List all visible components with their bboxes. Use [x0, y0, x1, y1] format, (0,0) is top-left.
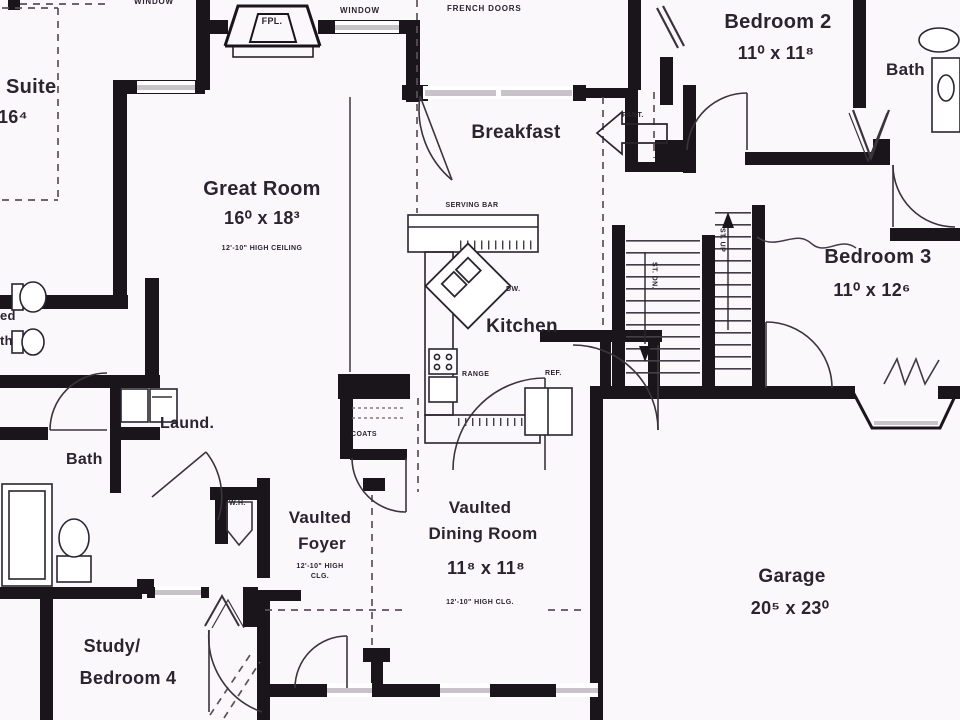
- study-name2: Bedroom 4: [80, 669, 177, 688]
- foyer-ceiling-note1: 12'-10" HIGH: [296, 563, 343, 570]
- window-label-left: WINDOW: [134, 0, 174, 6]
- floor-plan: WINDOW WINDOW FPL. FRENCH DOORS Bedroom …: [0, 0, 960, 720]
- breakfast-name: Breakfast: [471, 123, 560, 143]
- dining-name2: Dining Room: [428, 525, 537, 543]
- window-label-right: WINDOW: [340, 7, 380, 15]
- stairs-up-label: ST. UP: [718, 228, 725, 252]
- dining-ceiling-note: 12'-10" HIGH CLG.: [446, 599, 514, 606]
- garage-dims: 20⁵ x 23⁰: [751, 599, 829, 618]
- upper-bath-fixtures: [919, 28, 960, 132]
- suite-name: Suite: [6, 77, 56, 98]
- kitchen-name: Kitchen: [486, 317, 558, 337]
- laundry-name: Laund.: [160, 416, 214, 433]
- shelf-dashes: [352, 408, 404, 418]
- foyer-name2: Foyer: [298, 535, 346, 553]
- suite-dims: 16⁴: [0, 108, 28, 127]
- foyer-name1: Vaulted: [289, 509, 352, 527]
- refrigerator-icon: [525, 388, 572, 435]
- great-room-ceiling-note: 12'-10" HIGH CEILING: [222, 245, 303, 252]
- great-room-dims: 16⁰ x 18³: [224, 209, 300, 228]
- water-heater-label: W.H.: [229, 500, 246, 507]
- bath-upper-name: Bath: [886, 61, 925, 79]
- bedroom2-name: Bedroom 2: [724, 12, 831, 33]
- refrigerator-label: REF.: [545, 370, 562, 377]
- bedroom3-name: Bedroom 3: [824, 247, 931, 268]
- bath-lower-name: Bath: [66, 452, 103, 469]
- dishwasher-label: DW.: [506, 286, 520, 293]
- french-doors-label: FRENCH DOORS: [447, 5, 522, 13]
- fireplace-label: FPL.: [262, 17, 283, 26]
- bath-left-partial-line2: th: [0, 334, 13, 348]
- stairs-down-label: ST. DN.: [650, 262, 657, 289]
- study-name1: Study/: [84, 637, 141, 656]
- great-room-name: Great Room: [203, 179, 320, 200]
- garage-name: Garage: [758, 567, 825, 587]
- fireplace-icon: [225, 6, 320, 57]
- bath-left-partial-line1: ed: [0, 309, 16, 323]
- dashed-lines: [2, 0, 654, 718]
- foyer-ceiling-note2: CLG.: [311, 573, 329, 580]
- bedroom2-dims: 11⁰ x 11⁸: [738, 44, 815, 63]
- stairs-icon: [639, 212, 856, 376]
- bay-window-drapery-marks: [884, 359, 939, 384]
- range-label: RANGE: [462, 371, 489, 378]
- dining-dims: 11⁸ x 11⁸: [447, 559, 525, 578]
- dining-name1: Vaulted: [449, 499, 512, 517]
- coats-label: COATS: [351, 431, 377, 438]
- pantry-label: PANT.: [622, 112, 644, 119]
- serving-bar-label: SERVING BAR: [446, 202, 499, 209]
- bedroom3-dims: 11⁰ x 12⁶: [833, 281, 910, 300]
